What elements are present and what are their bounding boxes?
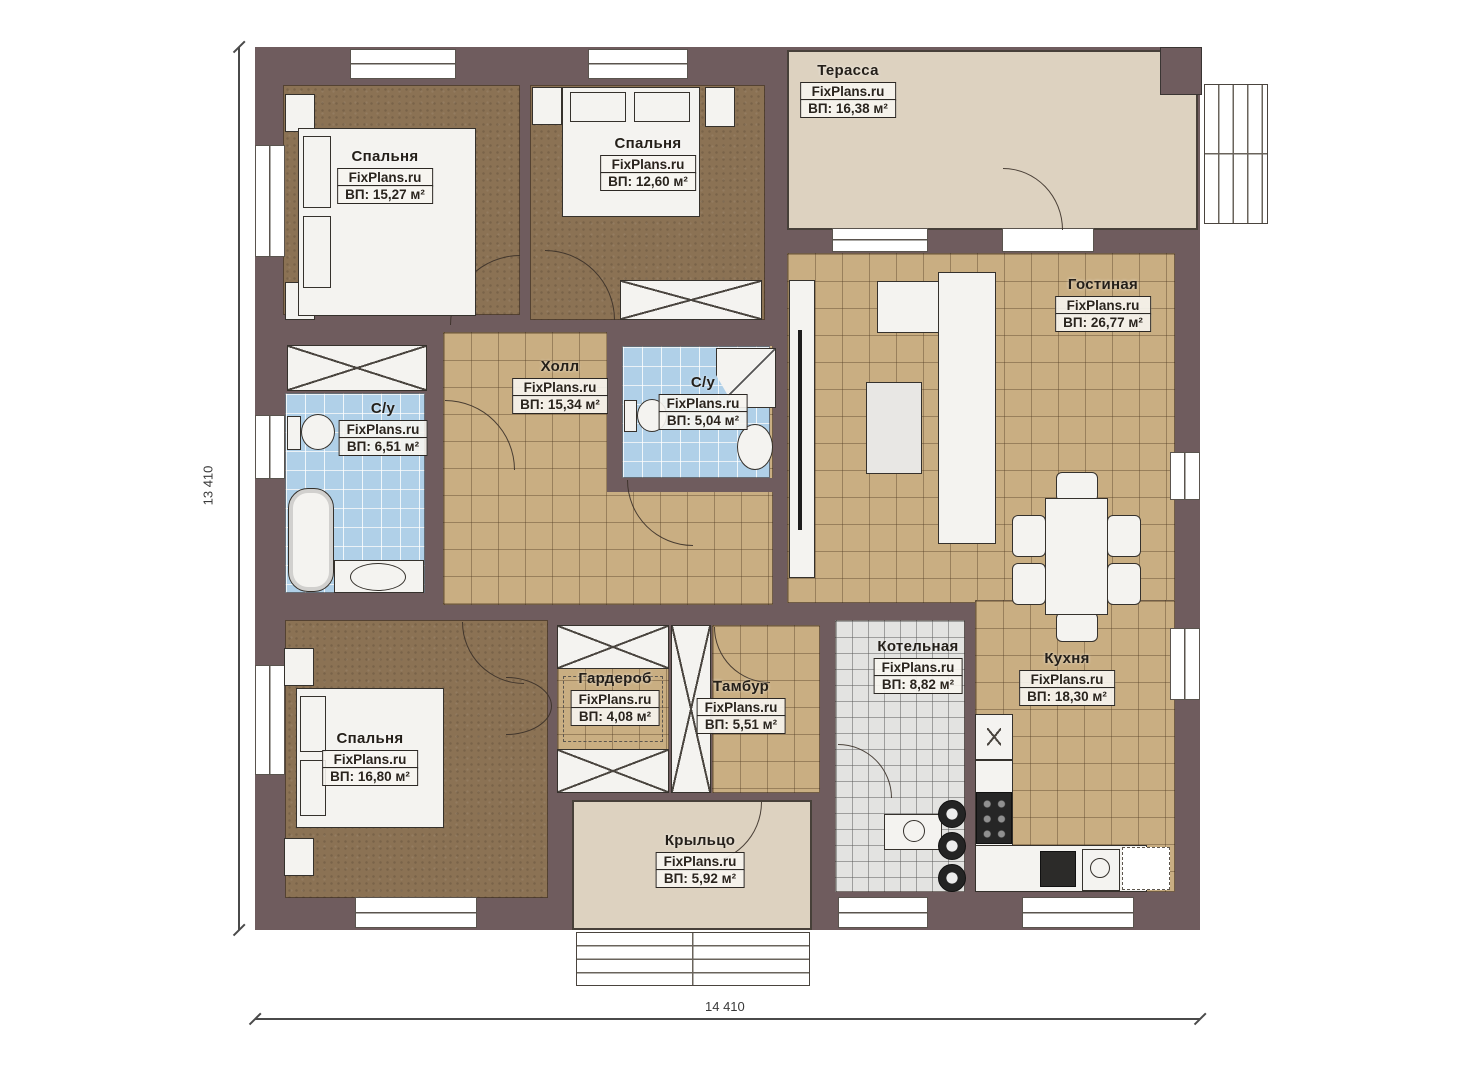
room-area: ВП: 5,51 м² bbox=[697, 715, 786, 734]
room-name: Крыльцо bbox=[656, 832, 745, 849]
sink-bowl bbox=[1090, 858, 1110, 878]
room-watermark: FixPlans.ru bbox=[874, 658, 963, 677]
wall-strip bbox=[607, 332, 778, 346]
room-watermark: FixPlans.ru bbox=[800, 82, 896, 101]
stove bbox=[976, 792, 1012, 844]
label-vestibule: Тамбур FixPlans.ruВП: 5,51 м² bbox=[697, 678, 786, 734]
wardrobe-cabinet bbox=[557, 749, 669, 793]
sink bbox=[350, 563, 406, 591]
room-area: ВП: 5,92 м² bbox=[656, 869, 745, 888]
label-bedroom-3: Спальня FixPlans.ruВП: 16,80 м² bbox=[322, 730, 418, 786]
label-terrace: Терасса FixPlans.ruВП: 16,38 м² bbox=[800, 62, 896, 118]
room-area: ВП: 15,27 м² bbox=[337, 185, 433, 204]
label-porch: Крыльцо FixPlans.ruВП: 5,92 м² bbox=[656, 832, 745, 888]
room-watermark: FixPlans.ru bbox=[571, 690, 660, 709]
dimension-label-height: 13 410 bbox=[200, 466, 215, 506]
chair bbox=[1012, 515, 1046, 557]
label-bedroom-2: Спальня FixPlans.ruВП: 12,60 м² bbox=[600, 135, 696, 191]
nightstand bbox=[284, 838, 314, 876]
window bbox=[355, 897, 477, 928]
room-watermark: FixPlans.ru bbox=[697, 698, 786, 717]
room-name: Спальня bbox=[337, 148, 433, 165]
room-watermark: FixPlans.ru bbox=[512, 378, 608, 397]
wall-strip bbox=[607, 332, 622, 478]
window bbox=[1170, 452, 1200, 500]
pillow bbox=[303, 216, 331, 288]
room-watermark: FixPlans.ru bbox=[1055, 296, 1151, 315]
chair bbox=[1056, 612, 1098, 642]
terrace-column bbox=[1160, 47, 1202, 95]
tv-stand bbox=[789, 280, 815, 578]
chair bbox=[1107, 515, 1141, 557]
sofa bbox=[938, 272, 996, 544]
water-heater bbox=[975, 714, 1013, 760]
room-watermark: FixPlans.ru bbox=[656, 852, 745, 871]
room-area: ВП: 6,51 м² bbox=[339, 437, 428, 456]
boiler-tank bbox=[938, 864, 966, 892]
sink bbox=[737, 424, 773, 470]
boiler-tank bbox=[938, 800, 966, 828]
bathtub bbox=[288, 488, 334, 592]
coffee-table bbox=[866, 382, 922, 474]
window bbox=[588, 49, 688, 79]
room-name: Тамбур bbox=[697, 678, 786, 695]
room-watermark: FixPlans.ru bbox=[322, 750, 418, 769]
room-name: Гардероб bbox=[571, 670, 660, 687]
chair bbox=[1107, 563, 1141, 605]
room-area: ВП: 8,82 м² bbox=[874, 675, 963, 694]
dining-table bbox=[1045, 498, 1108, 615]
room-watermark: FixPlans.ru bbox=[600, 155, 696, 174]
nightstand bbox=[284, 648, 314, 686]
room-area: ВП: 16,80 м² bbox=[322, 767, 418, 786]
room-area: ВП: 16,38 м² bbox=[800, 99, 896, 118]
toilet-tank bbox=[624, 400, 637, 432]
label-bathroom-left: С/у FixPlans.ruВП: 6,51 м² bbox=[339, 400, 428, 456]
dimension-line-vertical bbox=[238, 47, 240, 930]
room-name: Гостиная bbox=[1055, 276, 1151, 293]
pillow bbox=[570, 92, 626, 122]
room-area: ВП: 15,34 м² bbox=[512, 395, 608, 414]
label-bedroom-1: Спальня FixPlans.ruВП: 15,27 м² bbox=[337, 148, 433, 204]
room-area: ВП: 18,30 м² bbox=[1019, 687, 1115, 706]
room-name: С/у bbox=[659, 374, 748, 391]
window bbox=[1022, 897, 1134, 928]
room-name: Кухня bbox=[1019, 650, 1115, 667]
wardrobe-cabinet bbox=[557, 625, 669, 669]
boiler-tank bbox=[938, 832, 966, 860]
room-area: ВП: 4,08 м² bbox=[571, 707, 660, 726]
window bbox=[255, 665, 285, 775]
room-name: Терасса bbox=[800, 62, 896, 79]
pillow bbox=[303, 136, 331, 208]
room-watermark: FixPlans.ru bbox=[337, 168, 433, 187]
dimension-label-width: 14 410 bbox=[705, 999, 745, 1014]
window bbox=[1170, 628, 1200, 700]
room-watermark: FixPlans.ru bbox=[659, 394, 748, 413]
toilet bbox=[301, 414, 335, 450]
label-bathroom-small: С/у FixPlans.ruВП: 5,04 м² bbox=[659, 374, 748, 430]
tv bbox=[798, 330, 802, 530]
toilet-tank bbox=[287, 416, 301, 450]
window bbox=[255, 415, 285, 479]
dimension-line-horizontal bbox=[255, 1018, 1200, 1020]
label-wardrobe: Гардероб FixPlans.ruВП: 4,08 м² bbox=[571, 670, 660, 726]
window bbox=[255, 145, 285, 257]
oven bbox=[1040, 851, 1076, 887]
nightstand bbox=[532, 87, 562, 125]
room-name: Спальня bbox=[322, 730, 418, 747]
room-name: Холл bbox=[512, 358, 608, 375]
floor-plan: Терасса FixPlans.ruВП: 16,38 м² Спальня … bbox=[0, 0, 1473, 1080]
room-area: ВП: 12,60 м² bbox=[600, 172, 696, 191]
dishwasher bbox=[1122, 847, 1170, 890]
label-kitchen: Кухня FixPlans.ruВП: 18,30 м² bbox=[1019, 650, 1115, 706]
terrace-steps bbox=[1204, 84, 1268, 224]
porch-steps bbox=[576, 932, 810, 986]
chair bbox=[1012, 563, 1046, 605]
window bbox=[838, 897, 928, 928]
nightstand bbox=[285, 94, 315, 132]
room-name: Спальня bbox=[600, 135, 696, 152]
room-watermark: FixPlans.ru bbox=[339, 420, 428, 439]
nightstand bbox=[705, 87, 735, 127]
room-name: Котельная bbox=[874, 638, 963, 655]
pillow bbox=[634, 92, 690, 122]
label-hall: Холл FixPlans.ruВП: 15,34 м² bbox=[512, 358, 608, 414]
room-area: ВП: 26,77 м² bbox=[1055, 313, 1151, 332]
window bbox=[350, 49, 456, 79]
room-name: С/у bbox=[339, 400, 428, 417]
sink bbox=[903, 820, 925, 842]
label-boiler: Котельная FixPlans.ruВП: 8,82 м² bbox=[874, 638, 963, 694]
label-living: Гостиная FixPlans.ruВП: 26,77 м² bbox=[1055, 276, 1151, 332]
wardrobe-cabinet bbox=[620, 280, 762, 320]
room-area: ВП: 5,04 м² bbox=[659, 411, 748, 430]
terrace-door-gap bbox=[1002, 228, 1094, 252]
closet bbox=[287, 345, 427, 391]
room-watermark: FixPlans.ru bbox=[1019, 670, 1115, 689]
window bbox=[832, 228, 928, 252]
